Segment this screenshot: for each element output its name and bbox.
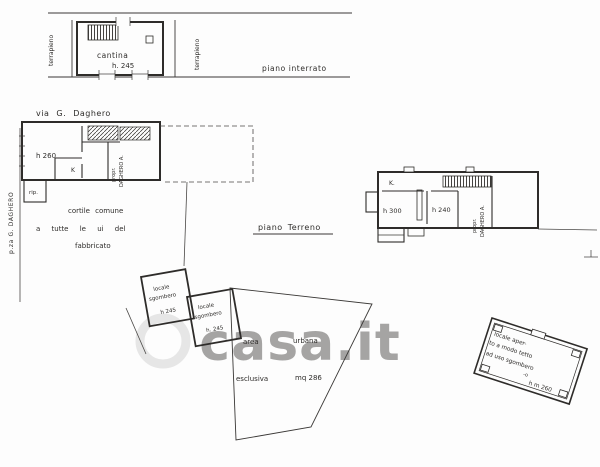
- storage2-label-1: locale: [198, 302, 216, 311]
- floor-plan-sheet: casa.it cantina h. 245 terrapieno terrap…: [0, 0, 600, 467]
- right-unit-h300-label: h 300: [383, 207, 402, 215]
- urban-area-size-label: mq 286: [295, 374, 322, 382]
- right-unit-h240-label: h 240: [432, 206, 451, 214]
- courtyard-label-3: fabbricato: [75, 242, 111, 250]
- right-unit-bay: [366, 192, 378, 212]
- left-unit-stairs-hatch-a: [88, 126, 118, 140]
- terrapieno-right-label: terrapieno: [194, 38, 201, 70]
- watermark-logo: [140, 318, 186, 364]
- urban-area-word-3: esclusiva: [236, 375, 268, 383]
- rip-label: rip.: [29, 190, 38, 196]
- cantina-label: cantina: [97, 51, 128, 60]
- urban-area-word-2: urbana: [293, 337, 318, 345]
- floor-plan-drawing: casa.it cantina h. 245 terrapieno terrap…: [0, 0, 600, 467]
- storage1-label-1: locale: [153, 284, 171, 293]
- right-owner-label-2: DAGHERO A.: [480, 205, 486, 237]
- open-shed-label-4: -o: [522, 372, 529, 379]
- basement-title: piano interrato: [262, 64, 327, 73]
- right-unit-stairs-hatch: [443, 176, 491, 187]
- left-owner-label-2: DAGHERO A.: [119, 155, 125, 187]
- via-daghero-label: via G. Daghero: [36, 109, 111, 118]
- right-unit-chimney: [417, 190, 422, 220]
- ground-floor-title: piano Terreno: [258, 223, 321, 232]
- courtyard-boundary-line: [184, 182, 187, 266]
- left-unit-plan: [19, 122, 253, 266]
- left-unit-height-label: h 260: [36, 152, 56, 160]
- left-unit-stairs-hatch-b: [120, 127, 150, 140]
- open-shed: locale aper- to a modo tetto ad uso sgom…: [474, 316, 588, 404]
- courtyard-label-2: a tutte le ui del: [36, 225, 126, 233]
- courtyard-label-1: cortile comune: [68, 207, 123, 215]
- right-unit-kitchen-label: K.: [389, 180, 395, 187]
- left-unit-kitchen-label: K: [71, 167, 76, 174]
- terrapieno-left-label: terrapieno: [48, 34, 55, 66]
- street-boundary-right: [538, 229, 597, 230]
- adjacent-building-dashed: [160, 126, 253, 182]
- basement-stairs-hatch: [88, 25, 118, 40]
- cantina-height-label: h. 245: [112, 62, 134, 70]
- piazza-daghero-label: p.za G. DAGHERO: [8, 192, 15, 254]
- urban-area-word-1: area: [243, 338, 259, 346]
- left-owner-label-1: propr.: [111, 167, 117, 182]
- storage1-label-2: sgombero: [149, 292, 178, 303]
- basement-window-mark: [146, 36, 153, 43]
- right-owner-label-1: propr.: [472, 218, 478, 233]
